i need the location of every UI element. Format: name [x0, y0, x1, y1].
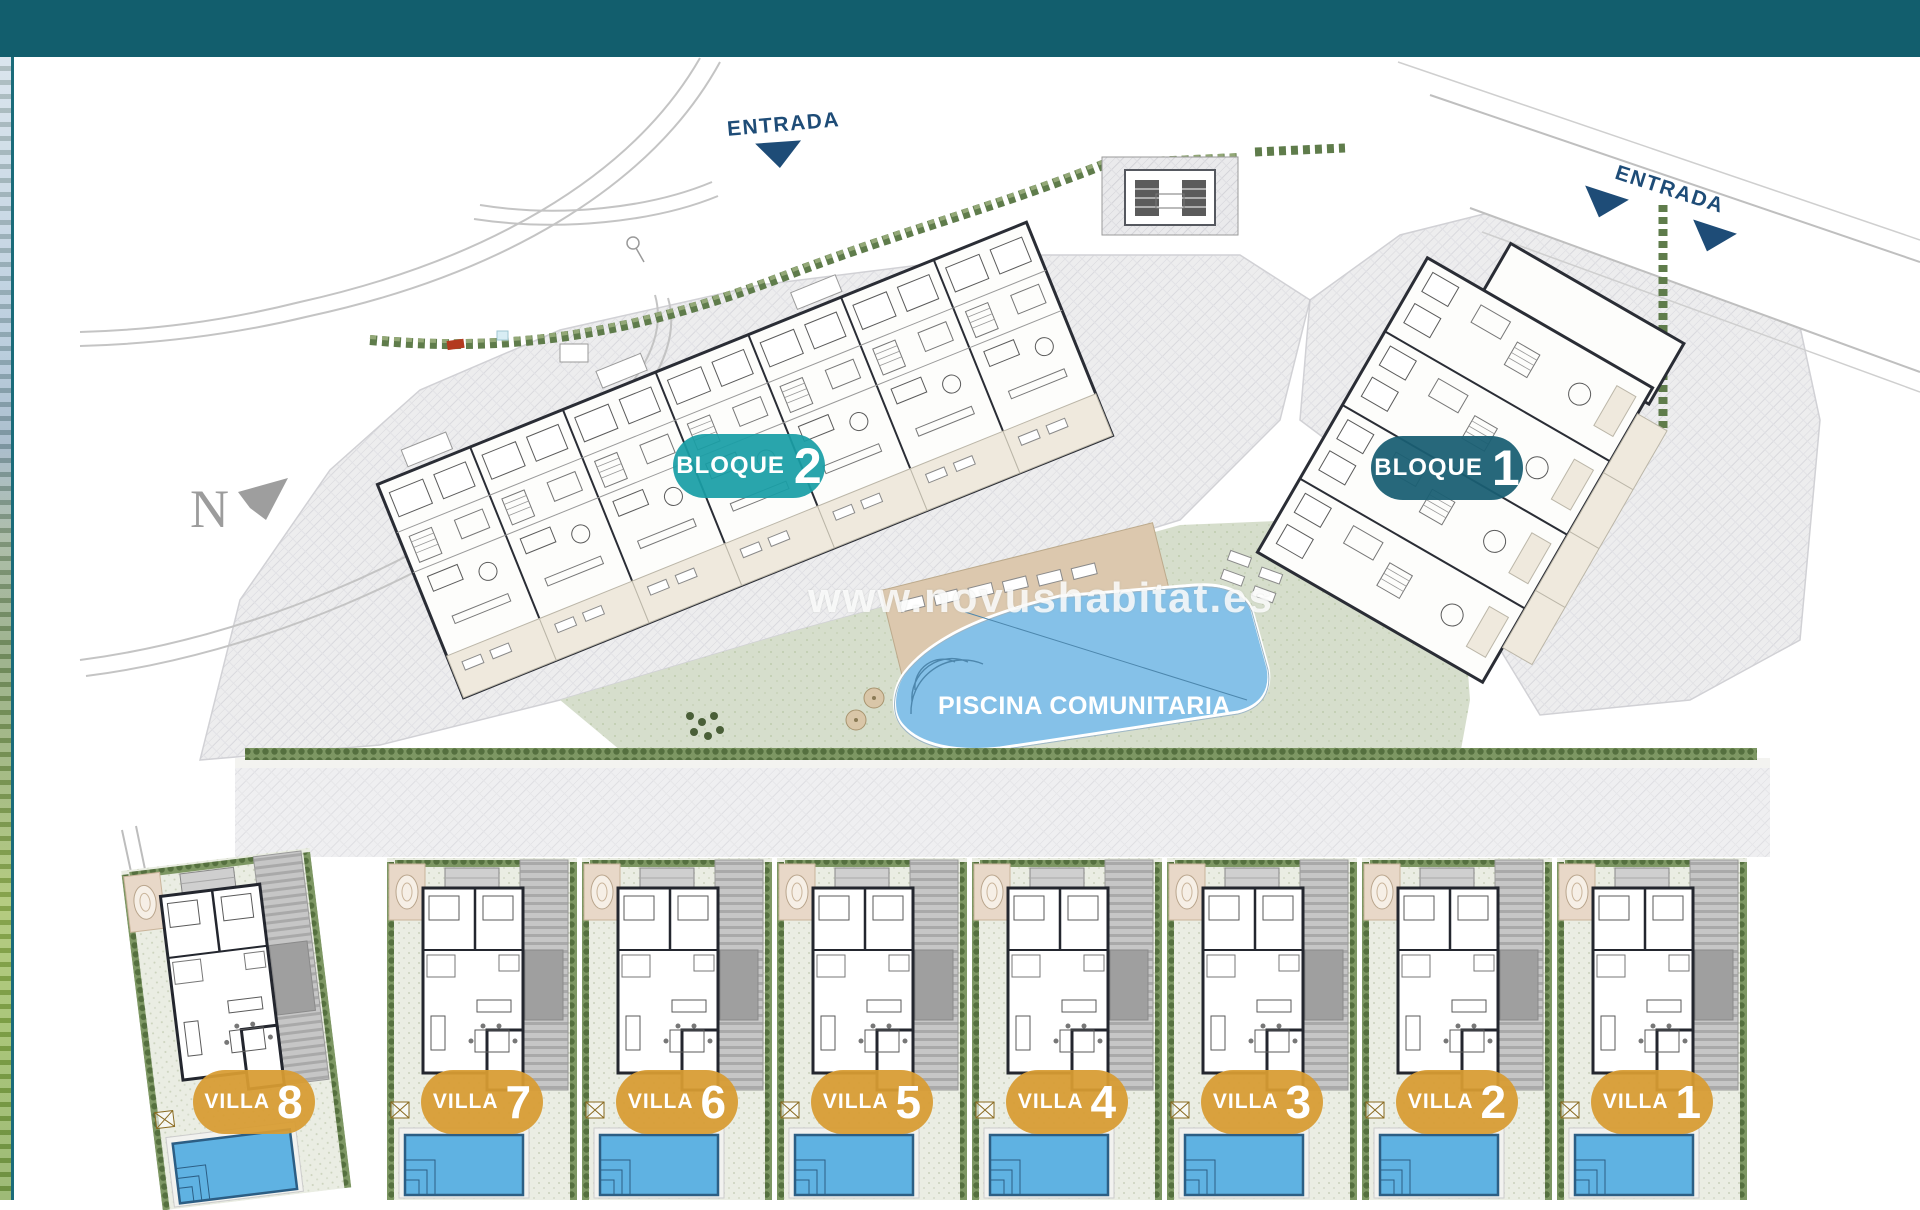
site-plan-page: ENTRADA ENTRADA N BLOQUE 2 BLOQUE 1 PISC…	[0, 0, 1920, 1200]
villa-1-lot: VILLA 1	[1557, 830, 1747, 1200]
bloque-2-label: BLOQUE	[676, 452, 785, 480]
villa-6-badge: VILLA 6	[616, 1070, 738, 1134]
villa-6-lot: VILLA 6	[582, 830, 772, 1200]
villa-5-badge: VILLA 5	[811, 1070, 933, 1134]
bloque-2-badge: BLOQUE 2	[673, 434, 825, 498]
villa-3-badge: VILLA 3	[1201, 1070, 1323, 1134]
community-pool-label: PISCINA COMUNITARIA	[938, 692, 1220, 721]
villa-4-badge: VILLA 4	[1006, 1070, 1128, 1134]
villa-6-number: 6	[701, 1079, 727, 1125]
villa-2-lot: VILLA 2	[1362, 830, 1552, 1200]
villa-8-label: VILLA	[204, 1090, 270, 1114]
villa-2-number: 2	[1481, 1079, 1507, 1125]
villa-1-number: 1	[1676, 1079, 1702, 1125]
bloque-1-number: 1	[1492, 443, 1520, 493]
bloque-2-number: 2	[794, 441, 822, 491]
north-arrow-icon	[236, 476, 296, 528]
villa-7-number: 7	[506, 1079, 532, 1125]
north-indicator-label: N	[190, 478, 229, 540]
villa-7-lot: VILLA 7	[387, 830, 577, 1200]
villa-8-number: 8	[277, 1079, 303, 1125]
villa-7-label: VILLA	[433, 1090, 499, 1114]
villa-8-badge: VILLA 8	[193, 1070, 315, 1134]
villa-5-lot: VILLA 5	[777, 830, 967, 1200]
villa-2-badge: VILLA 2	[1396, 1070, 1518, 1134]
villa-7-badge: VILLA 7	[421, 1070, 543, 1134]
entrance-arrow-1-icon	[755, 140, 803, 169]
villa-4-lot: VILLA 4	[972, 830, 1162, 1200]
header-bar	[0, 0, 1920, 57]
villa-6-label: VILLA	[628, 1090, 694, 1114]
villa-4-label: VILLA	[1018, 1090, 1084, 1114]
landscape-photo-strip	[0, 57, 11, 1200]
divider-line	[11, 57, 14, 1200]
villa-1-label: VILLA	[1603, 1090, 1669, 1114]
villa-4-number: 4	[1091, 1079, 1117, 1125]
villa-3-label: VILLA	[1213, 1090, 1279, 1114]
bloque-1-badge: BLOQUE 1	[1371, 436, 1523, 500]
villa-8-lot: VILLA 8	[118, 830, 360, 1200]
bloque-1-label: BLOQUE	[1374, 454, 1483, 482]
villa-5-label: VILLA	[823, 1090, 889, 1114]
watermark: www.novushabitat.es	[808, 574, 1274, 622]
villa-1-badge: VILLA 1	[1591, 1070, 1713, 1134]
villa-2-label: VILLA	[1408, 1090, 1474, 1114]
villa-3-lot: VILLA 3	[1167, 830, 1357, 1200]
villa-5-number: 5	[896, 1079, 922, 1125]
entrance-pavilion	[1102, 157, 1238, 235]
villa-3-number: 3	[1286, 1079, 1312, 1125]
